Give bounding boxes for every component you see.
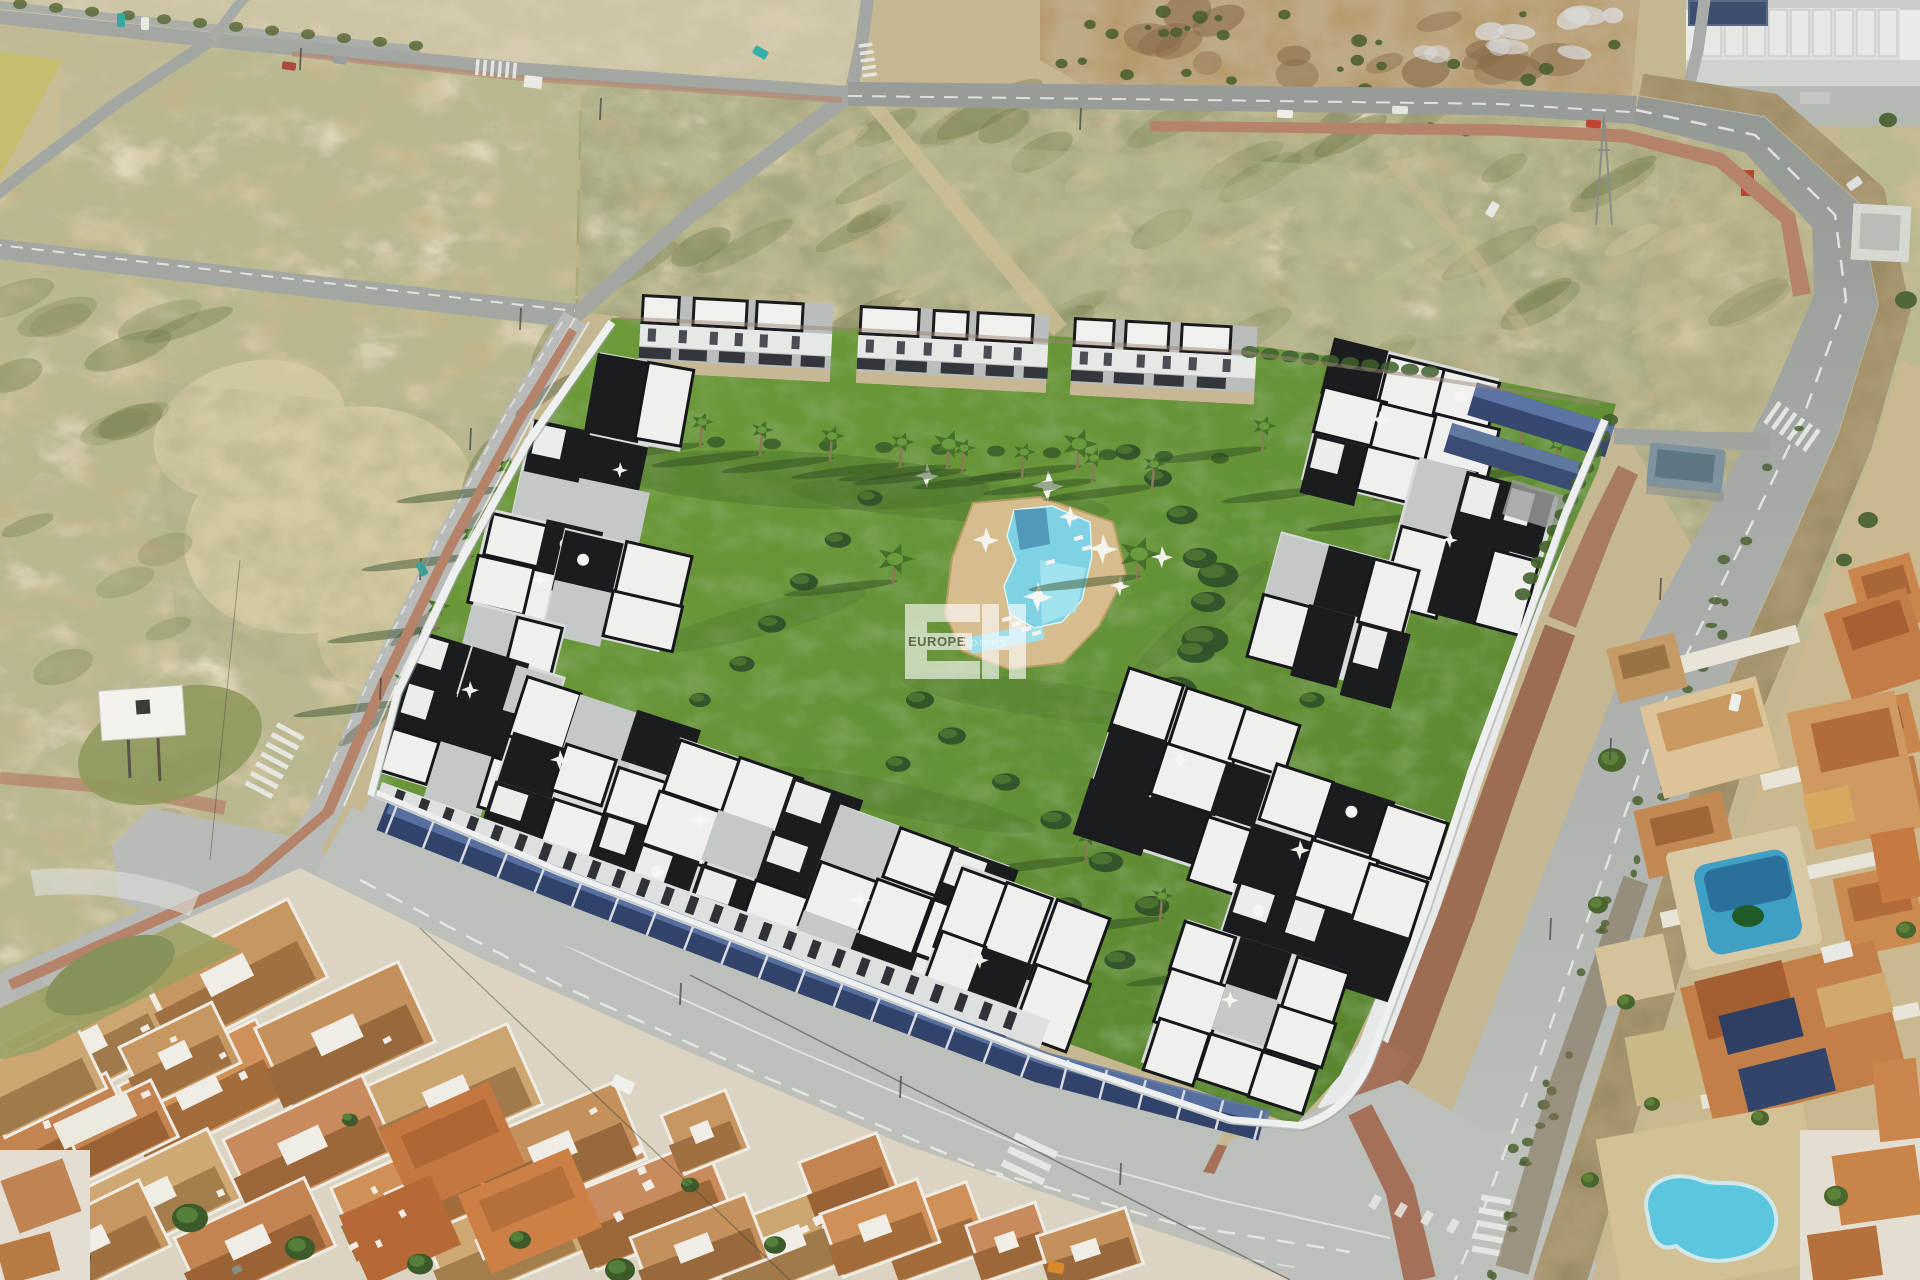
svg-text:EUROPE: EUROPE xyxy=(908,634,966,649)
svg-text:homes: homes xyxy=(962,635,1008,649)
